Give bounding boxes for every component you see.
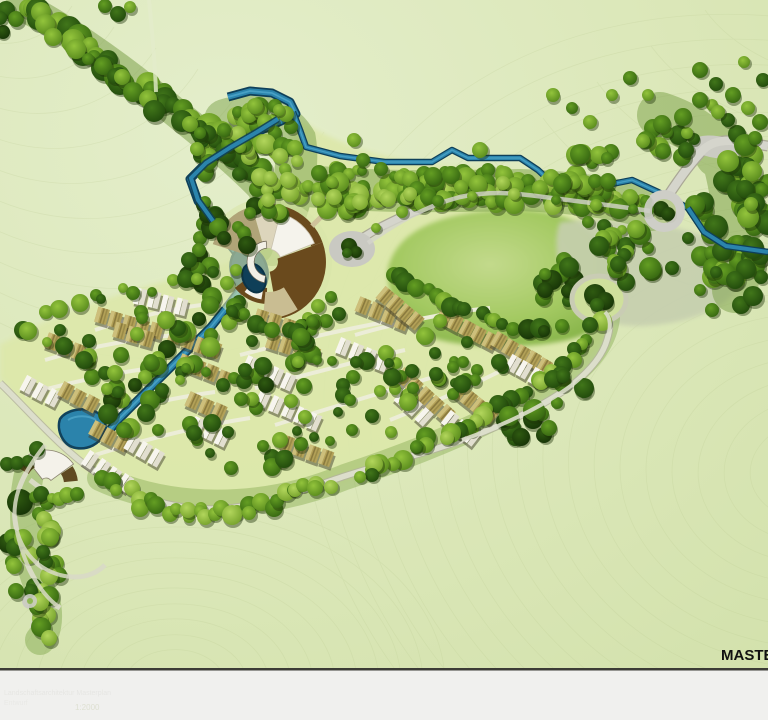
svg-text:Entwurf: Entwurf — [4, 700, 28, 707]
svg-text:1:2000: 1:2000 — [75, 703, 100, 712]
svg-text:Landschaftsarchitektur Masterp: Landschaftsarchitektur Masterplan — [4, 690, 111, 697]
svg-text:MASTERPLAN: MASTERPLAN — [721, 647, 768, 664]
